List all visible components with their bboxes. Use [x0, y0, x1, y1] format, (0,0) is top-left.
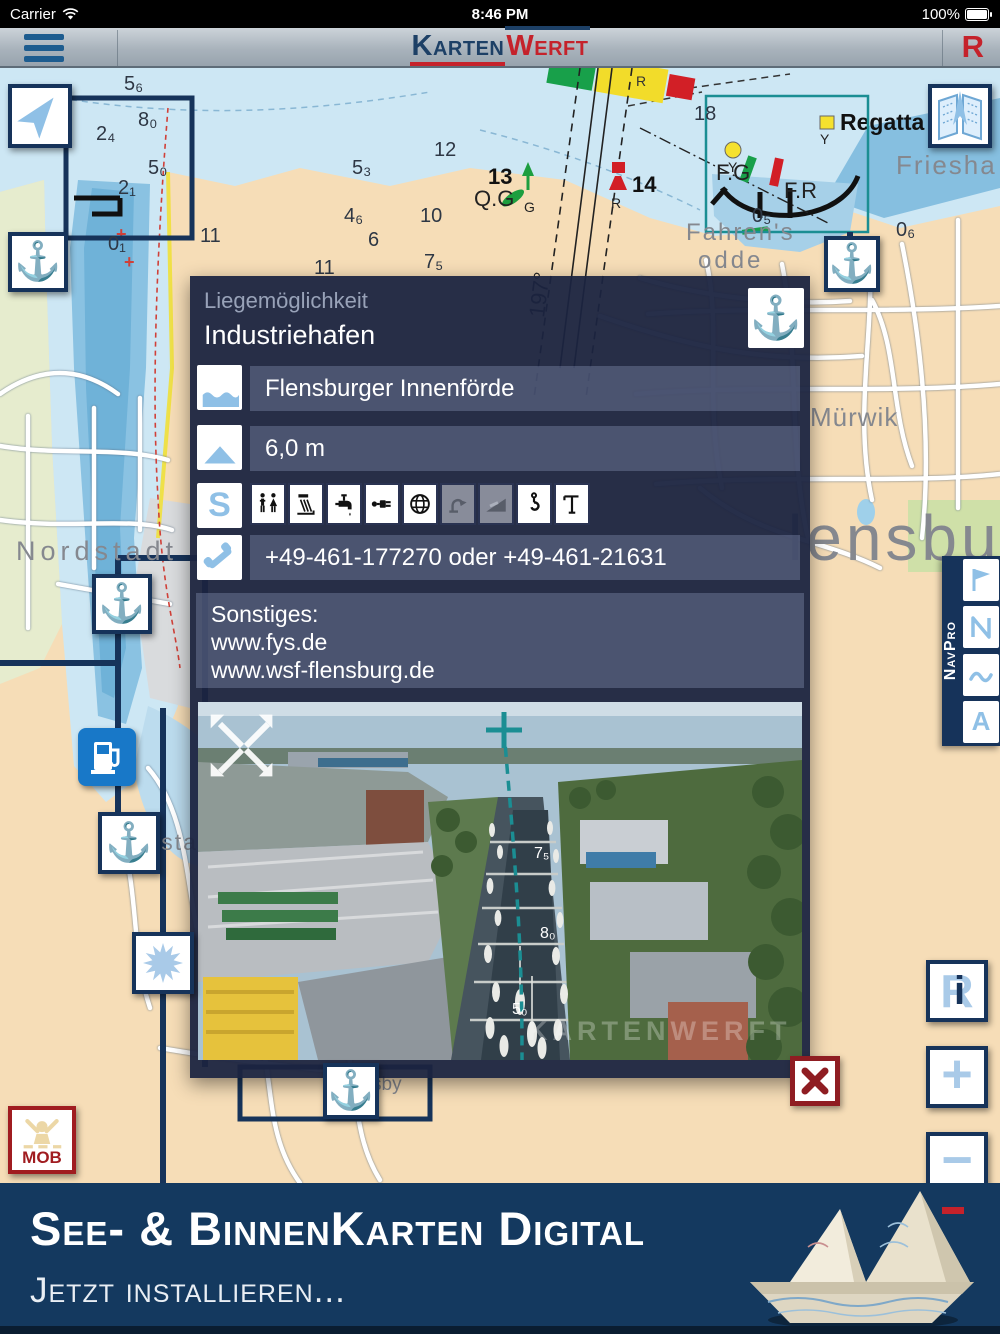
amenity-shore-power [364, 483, 400, 525]
amenity-restrooms [250, 483, 286, 525]
logo-karten: Karten [410, 30, 506, 66]
pump-out-icon [445, 489, 471, 519]
svg-text:5₆: 5₆ [124, 73, 143, 95]
harbour-photo[interactable]: 7₅ 8₀ 5₀ KARTENWERFT [198, 702, 802, 1060]
svg-text:0₁: 0₁ [108, 233, 126, 255]
mob-label: MOB [22, 1149, 62, 1166]
anchor-button-1[interactable]: ⚓ [8, 232, 68, 292]
info-button[interactable]: R i [926, 960, 988, 1022]
photo-watermark: KARTENWERFT [528, 1016, 791, 1046]
yellow-buoy [725, 142, 741, 158]
battery-icon [965, 8, 992, 21]
services-icon-box: S [197, 483, 242, 528]
route-button[interactable]: R [962, 29, 984, 65]
svg-text:0₅: 0₅ [752, 205, 771, 227]
svg-text:7₅: 7₅ [424, 251, 443, 273]
water-icon [201, 369, 239, 407]
berth-type-badge: ⚓ [748, 288, 804, 348]
sunburst-icon [139, 939, 187, 987]
svg-text:4₆: 4₆ [344, 205, 363, 227]
svg-text:odde: odde [698, 247, 763, 274]
phone-icon [200, 538, 240, 578]
banner-bottom-strip [0, 1326, 1000, 1334]
svg-text:F.R: F.R [784, 178, 817, 203]
mob-button[interactable]: MOB [8, 1106, 76, 1174]
svg-text:5₀: 5₀ [148, 157, 167, 179]
compass-button[interactable] [8, 84, 72, 148]
svg-text:Q.G: Q.G [474, 186, 514, 211]
crane-hook-icon [521, 489, 547, 519]
navpro-track-button[interactable] [963, 654, 999, 696]
anchor-button-4[interactable]: ⚓ [323, 1063, 379, 1119]
anchor-button-5[interactable]: ⚓ [824, 236, 880, 292]
berth-detail-popup: Liegemöglichkeit Industriehafen ⚓ Flensb… [190, 276, 810, 1078]
svg-text:G: G [524, 199, 535, 215]
chart-atlas-button[interactable] [928, 84, 992, 148]
amenity-shower [288, 483, 324, 525]
minus-icon: − [941, 1160, 973, 1166]
track-icon [968, 661, 994, 689]
app-screen: Carrier 8:46 PM 100% KartenWerft R [0, 0, 1000, 1334]
status-bar: Carrier 8:46 PM 100% [0, 0, 1000, 28]
depth-icon [201, 429, 239, 467]
svg-text:11: 11 [200, 225, 221, 247]
marina-star-button[interactable] [132, 932, 194, 994]
anchor-icon: ⚓ [750, 297, 802, 339]
amenity-internet [402, 483, 438, 525]
amenity-mast-crane [554, 483, 590, 525]
water-area-icon-box [197, 365, 242, 410]
compass-needle-icon [12, 88, 68, 144]
svg-text:5₃: 5₃ [352, 157, 371, 179]
svg-text:18: 18 [694, 103, 716, 125]
anchor-button-3[interactable]: ⚓ [98, 812, 160, 874]
navpro-anchor-alarm-button[interactable]: A [963, 701, 999, 743]
banner-title: See- & BinnenKarten Digital [30, 1201, 645, 1256]
popup-title: Industriehafen [204, 320, 375, 351]
svg-text:Fahren's: Fahren's [686, 219, 795, 246]
info-i-icon: i [954, 969, 965, 1014]
svg-text:R: R [611, 195, 621, 211]
svg-text:Friesha: Friesha [896, 150, 997, 180]
amenities-row [250, 483, 590, 525]
navpro-tab: NavPro [942, 556, 960, 746]
nautical-chart[interactable]: + + R 197° 13 Q.G [0, 68, 1000, 1183]
svg-text:+: + [124, 252, 135, 272]
logo-werft: Werft [505, 26, 590, 62]
phone-value[interactable]: +49-461-177270 oder +49-461-21631 [250, 535, 800, 580]
anchor-icon: ⚓ [105, 824, 152, 862]
svg-text:F.G: F.G [716, 160, 750, 185]
zoom-out-button[interactable]: − [926, 1132, 988, 1183]
promo-banner[interactable]: See- & BinnenKarten Digital Jetzt instal… [0, 1183, 1000, 1334]
water-tap-icon [331, 489, 357, 519]
svg-text:14: 14 [632, 172, 657, 197]
plus-icon: + [941, 1074, 973, 1080]
anchor-icon: ⚓ [14, 243, 61, 281]
depth-icon-box [197, 425, 242, 470]
popup-type-label: Liegemöglichkeit [204, 288, 368, 314]
shower-icon [293, 489, 319, 519]
fuel-pump-icon [86, 736, 128, 778]
restrooms-icon [255, 489, 281, 519]
battery-percent: 100% [922, 6, 960, 23]
label-nordstadt: Nordstadt [16, 536, 178, 566]
amenity-pump-out [440, 483, 476, 525]
services-letter-icon: S [208, 486, 231, 525]
close-popup-button[interactable] [790, 1056, 840, 1106]
svg-text:R: R [636, 73, 646, 89]
navpro-label: NavPro [942, 621, 960, 680]
svg-text:2₄: 2₄ [96, 123, 115, 145]
svg-text:0₆: 0₆ [896, 219, 915, 241]
zoom-in-button[interactable]: + [926, 1046, 988, 1108]
clock: 8:46 PM [0, 6, 1000, 23]
amenity-fresh-water [326, 483, 362, 525]
svg-text:6: 6 [368, 229, 379, 251]
svg-text:2₁: 2₁ [118, 177, 136, 199]
navpro-panel: NavPro A [942, 556, 1000, 746]
website-link-2[interactable]: www.wsf-flensburg.de [211, 656, 804, 684]
svg-text:Y: Y [820, 131, 830, 147]
phone-icon-box [197, 535, 242, 580]
svg-text:8₀: 8₀ [540, 925, 556, 942]
harbour-photo-image: 7₅ 8₀ 5₀ KARTENWERFT [198, 702, 802, 1060]
other-heading: Sonstiges: [211, 600, 804, 628]
svg-text:8₀: 8₀ [138, 109, 157, 131]
man-overboard-icon [20, 1115, 64, 1151]
mast-crane-icon [559, 489, 585, 519]
navpro-route-button[interactable] [963, 606, 999, 648]
svg-text:7₅: 7₅ [534, 845, 549, 862]
top-toolbar: KartenWerft R [0, 28, 1000, 68]
svg-text:5₀: 5₀ [512, 1001, 528, 1018]
depth-value: 6,0 m [250, 426, 800, 471]
anchor-icon: ⚓ [828, 245, 875, 283]
svg-text:10: 10 [420, 205, 442, 227]
close-icon [800, 1066, 830, 1096]
regatta-label: Regatta [840, 109, 925, 135]
fuel-station-button[interactable] [78, 728, 136, 786]
svg-text:12: 12 [434, 139, 456, 161]
amenity-crane [516, 483, 552, 525]
other-info-block: Sonstiges: www.fys.de www.wsf-flensburg.… [196, 593, 804, 688]
globe-icon [407, 489, 433, 519]
svg-text:Mürwik: Mürwik [810, 402, 898, 432]
website-link-1[interactable]: www.fys.de [211, 628, 804, 656]
water-area-value: Flensburger Innenförde [250, 366, 800, 411]
regatta-mark [820, 116, 834, 129]
anchor-icon: ⚓ [98, 585, 145, 623]
slipway-icon [483, 489, 509, 519]
banner-subtitle: Jetzt installieren... [30, 1271, 346, 1311]
power-plug-icon [369, 489, 395, 519]
anchor-button-2[interactable]: ⚓ [92, 574, 152, 634]
paper-boat-graphic [728, 1187, 996, 1332]
chart-atlas-icon [933, 89, 987, 143]
toolbar-divider [942, 30, 943, 66]
anchor-icon: ⚓ [327, 1072, 374, 1110]
letter-a-icon: A [972, 706, 991, 737]
app-logo: KartenWerft [0, 30, 1000, 63]
flag-icon [968, 566, 994, 594]
navpro-flag-button[interactable] [963, 559, 999, 601]
amenity-slipway [478, 483, 514, 525]
route-icon [968, 613, 994, 641]
